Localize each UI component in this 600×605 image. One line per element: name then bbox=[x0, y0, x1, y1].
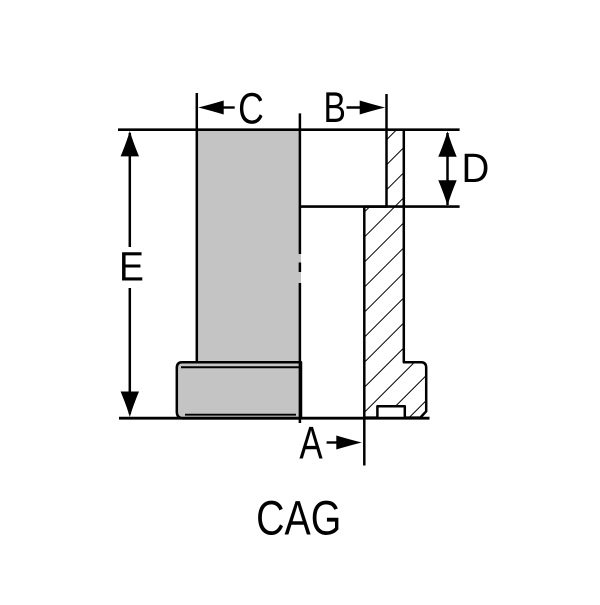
svg-text:B: B bbox=[324, 84, 346, 132]
svg-text:CAG: CAG bbox=[256, 492, 341, 546]
svg-text:E: E bbox=[119, 244, 144, 290]
svg-text:A: A bbox=[299, 417, 323, 469]
svg-text:D: D bbox=[461, 145, 489, 191]
svg-text:C: C bbox=[238, 84, 264, 133]
